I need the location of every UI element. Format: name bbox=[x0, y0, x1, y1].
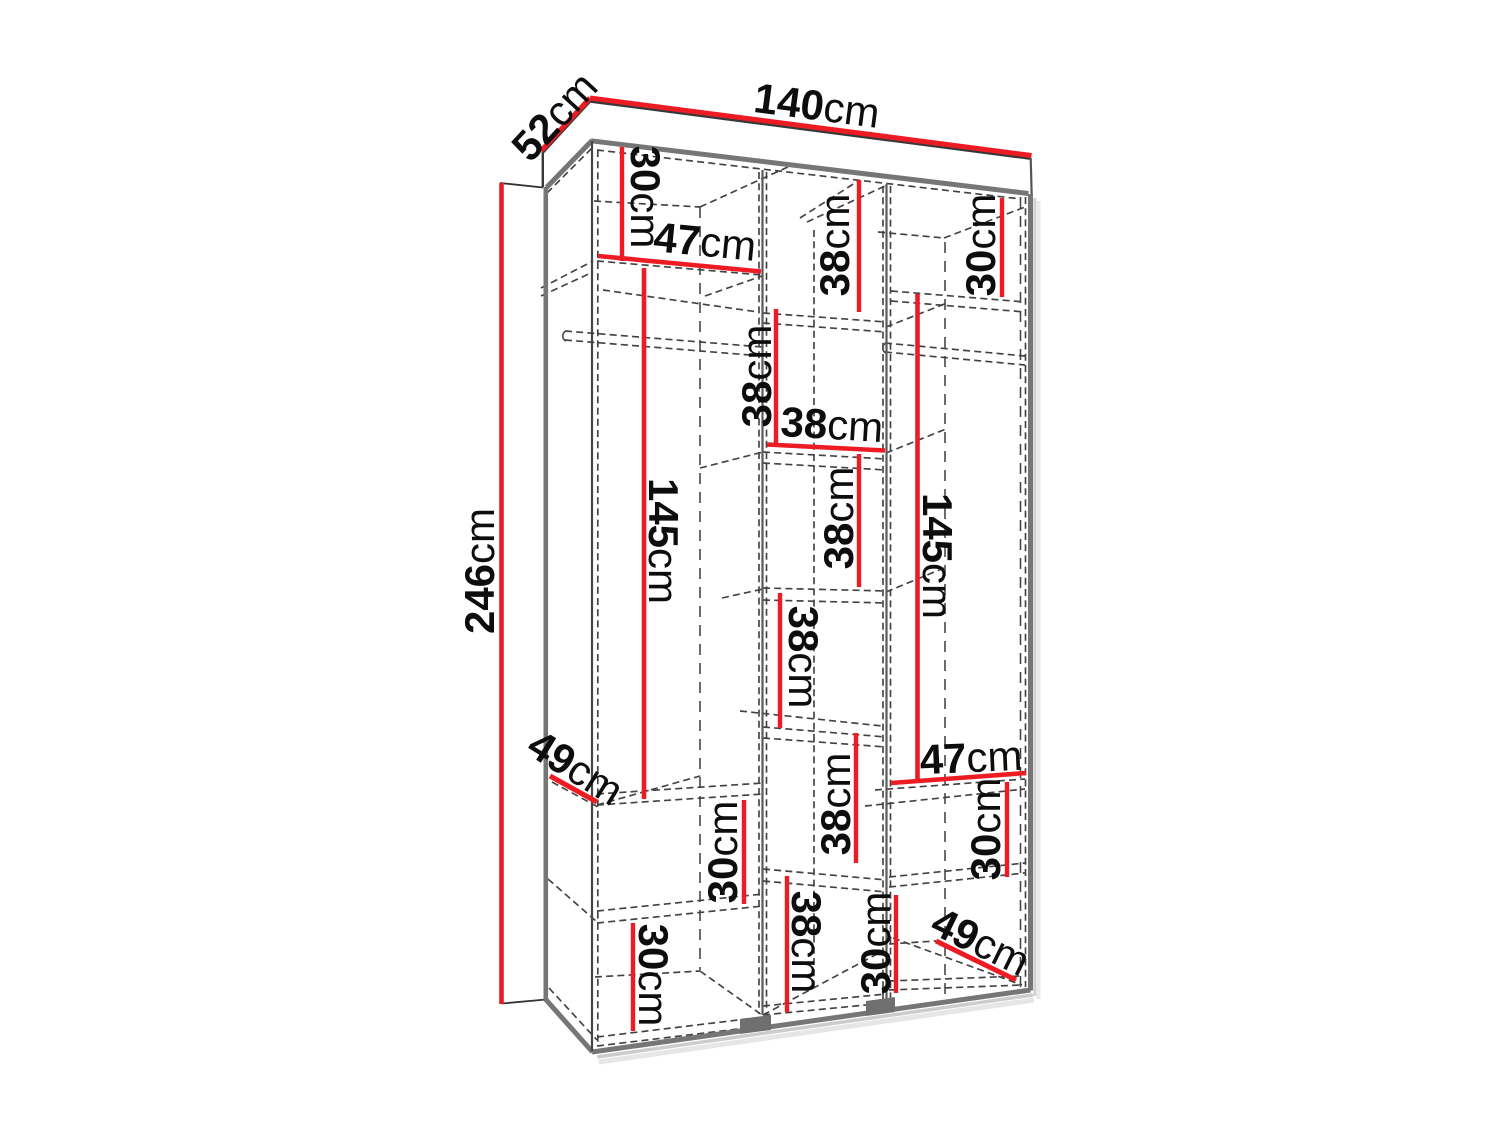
svg-text:47cm: 47cm bbox=[919, 731, 1024, 782]
svg-text:30cm: 30cm bbox=[962, 778, 1009, 881]
svg-text:38cm: 38cm bbox=[811, 194, 858, 297]
svg-text:38cm: 38cm bbox=[779, 397, 884, 450]
svg-text:38cm: 38cm bbox=[781, 606, 828, 709]
svg-text:30cm: 30cm bbox=[631, 924, 678, 1027]
svg-text:47cm: 47cm bbox=[652, 213, 759, 270]
svg-text:30cm: 30cm bbox=[957, 194, 1004, 297]
svg-text:145cm: 145cm bbox=[915, 493, 962, 619]
svg-text:38cm: 38cm bbox=[733, 325, 780, 428]
svg-text:38cm: 38cm bbox=[784, 891, 831, 994]
svg-text:246cm: 246cm bbox=[456, 508, 503, 634]
svg-text:30cm: 30cm bbox=[699, 801, 746, 904]
svg-text:30cm: 30cm bbox=[852, 892, 899, 995]
svg-text:38cm: 38cm bbox=[812, 753, 859, 856]
svg-text:38cm: 38cm bbox=[815, 467, 862, 570]
svg-text:145cm: 145cm bbox=[641, 478, 688, 604]
